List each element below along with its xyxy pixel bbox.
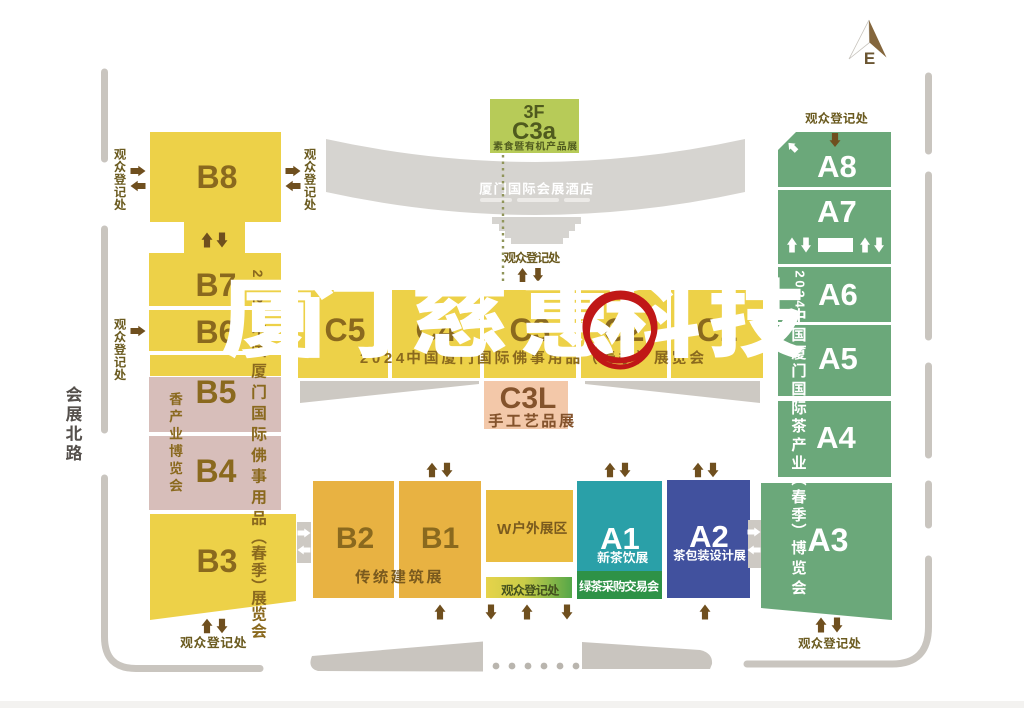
svg-text:A4: A4 bbox=[816, 420, 856, 455]
svg-text:B2: B2 bbox=[336, 522, 374, 555]
svg-text:0: 0 bbox=[792, 280, 807, 287]
svg-text:B7: B7 bbox=[196, 267, 237, 303]
svg-text:C5: C5 bbox=[325, 312, 366, 348]
svg-text:A1: A1 bbox=[600, 521, 640, 556]
svg-text:A2: A2 bbox=[689, 519, 729, 554]
svg-text:A5: A5 bbox=[818, 341, 858, 376]
svg-text:C3a: C3a bbox=[512, 118, 557, 145]
svg-text:B3: B3 bbox=[197, 543, 238, 579]
svg-text:A7: A7 bbox=[817, 194, 857, 229]
svg-text:B8: B8 bbox=[197, 159, 238, 195]
svg-text:A3: A3 bbox=[808, 522, 849, 558]
svg-text:B1: B1 bbox=[421, 522, 459, 555]
svg-text:4: 4 bbox=[792, 300, 807, 308]
svg-text:W: W bbox=[497, 521, 512, 538]
svg-text:2: 2 bbox=[792, 270, 807, 277]
svg-text:A6: A6 bbox=[818, 277, 858, 312]
svg-text:B5: B5 bbox=[196, 374, 237, 410]
svg-text:B4: B4 bbox=[196, 453, 237, 489]
svg-text:2: 2 bbox=[250, 270, 266, 278]
svg-text:C3L: C3L bbox=[500, 382, 557, 415]
svg-text:4: 4 bbox=[396, 350, 405, 367]
svg-text:A8: A8 bbox=[817, 149, 857, 184]
svg-text:E: E bbox=[864, 49, 875, 68]
